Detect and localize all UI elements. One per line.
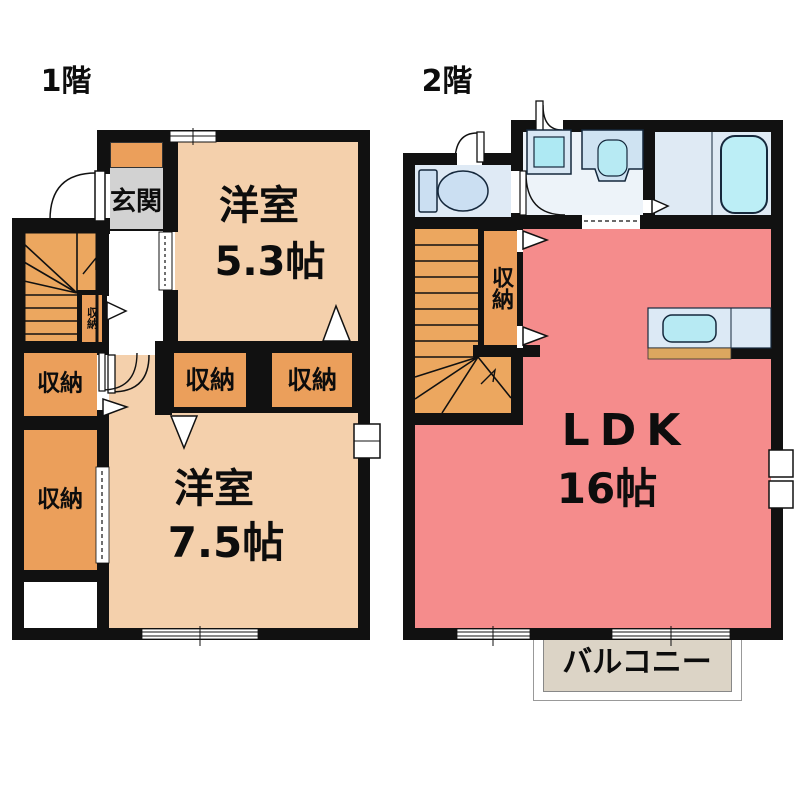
closet-floor2-label: 収納 xyxy=(489,266,511,310)
room75-size-label: 7.5帖 xyxy=(168,522,284,564)
wall-segment xyxy=(97,130,370,142)
sliding-door-threshold xyxy=(582,215,640,229)
window-opening xyxy=(771,452,783,508)
floor2-label: 2階 xyxy=(422,67,473,97)
wall-segment xyxy=(12,416,109,430)
door-opening xyxy=(538,120,563,132)
wall-segment xyxy=(97,232,109,296)
wall-segment xyxy=(163,142,178,232)
closet-lower-left-sliding-door xyxy=(96,467,109,563)
closet-upper-left-label: 収納 xyxy=(37,373,83,396)
wall-segment xyxy=(511,357,523,425)
floorplan-canvas: 1階 2階 玄関 洋室 5.3帖 洋室 7.5帖 収納 収納 収納 収納 収納 … xyxy=(0,0,799,800)
wall-segment xyxy=(403,413,523,425)
room75-name-label: 洋室 xyxy=(174,469,254,509)
room53-name-label: 洋室 xyxy=(219,186,299,226)
wall-segment xyxy=(731,345,771,359)
wall-segment xyxy=(358,130,370,640)
entrance-porch xyxy=(110,142,163,168)
stairs-floor2 xyxy=(415,229,478,413)
closet-top-left-label: 収納 xyxy=(185,368,235,393)
wall-segment xyxy=(771,120,783,640)
door-opening xyxy=(517,230,523,252)
closet-stair-small-label: 収納 xyxy=(87,307,98,329)
wall-segment xyxy=(643,120,655,200)
wall-segment xyxy=(252,347,266,413)
closet-lower-left-label: 収納 xyxy=(37,489,83,512)
bathroom xyxy=(655,132,771,217)
wall-segment xyxy=(511,120,523,171)
wall-segment xyxy=(12,218,110,232)
washroom xyxy=(523,132,643,215)
entrance-door xyxy=(50,171,105,221)
door-opening xyxy=(457,153,482,165)
toilet-room xyxy=(415,165,511,217)
wall-segment xyxy=(97,130,110,174)
balcony-label: バルコニー xyxy=(562,648,711,678)
ldk-name-label: LDK xyxy=(562,409,691,453)
closet-top-right-label: 収納 xyxy=(287,368,337,393)
wall-segment xyxy=(403,628,783,640)
door-opening xyxy=(517,326,523,348)
ldk-size-label: 16帖 xyxy=(557,468,657,510)
genkan-label: 玄関 xyxy=(110,189,162,215)
ldk-room-left xyxy=(415,425,523,628)
room53-sliding-door xyxy=(159,232,172,290)
room53-size-label: 5.3帖 xyxy=(215,242,326,282)
floor1-label: 1階 xyxy=(41,67,92,97)
wall-segment xyxy=(12,628,370,640)
wall-segment xyxy=(643,213,655,229)
window-opening xyxy=(358,428,370,456)
wall-segment xyxy=(163,290,178,341)
wall-segment xyxy=(12,570,109,582)
